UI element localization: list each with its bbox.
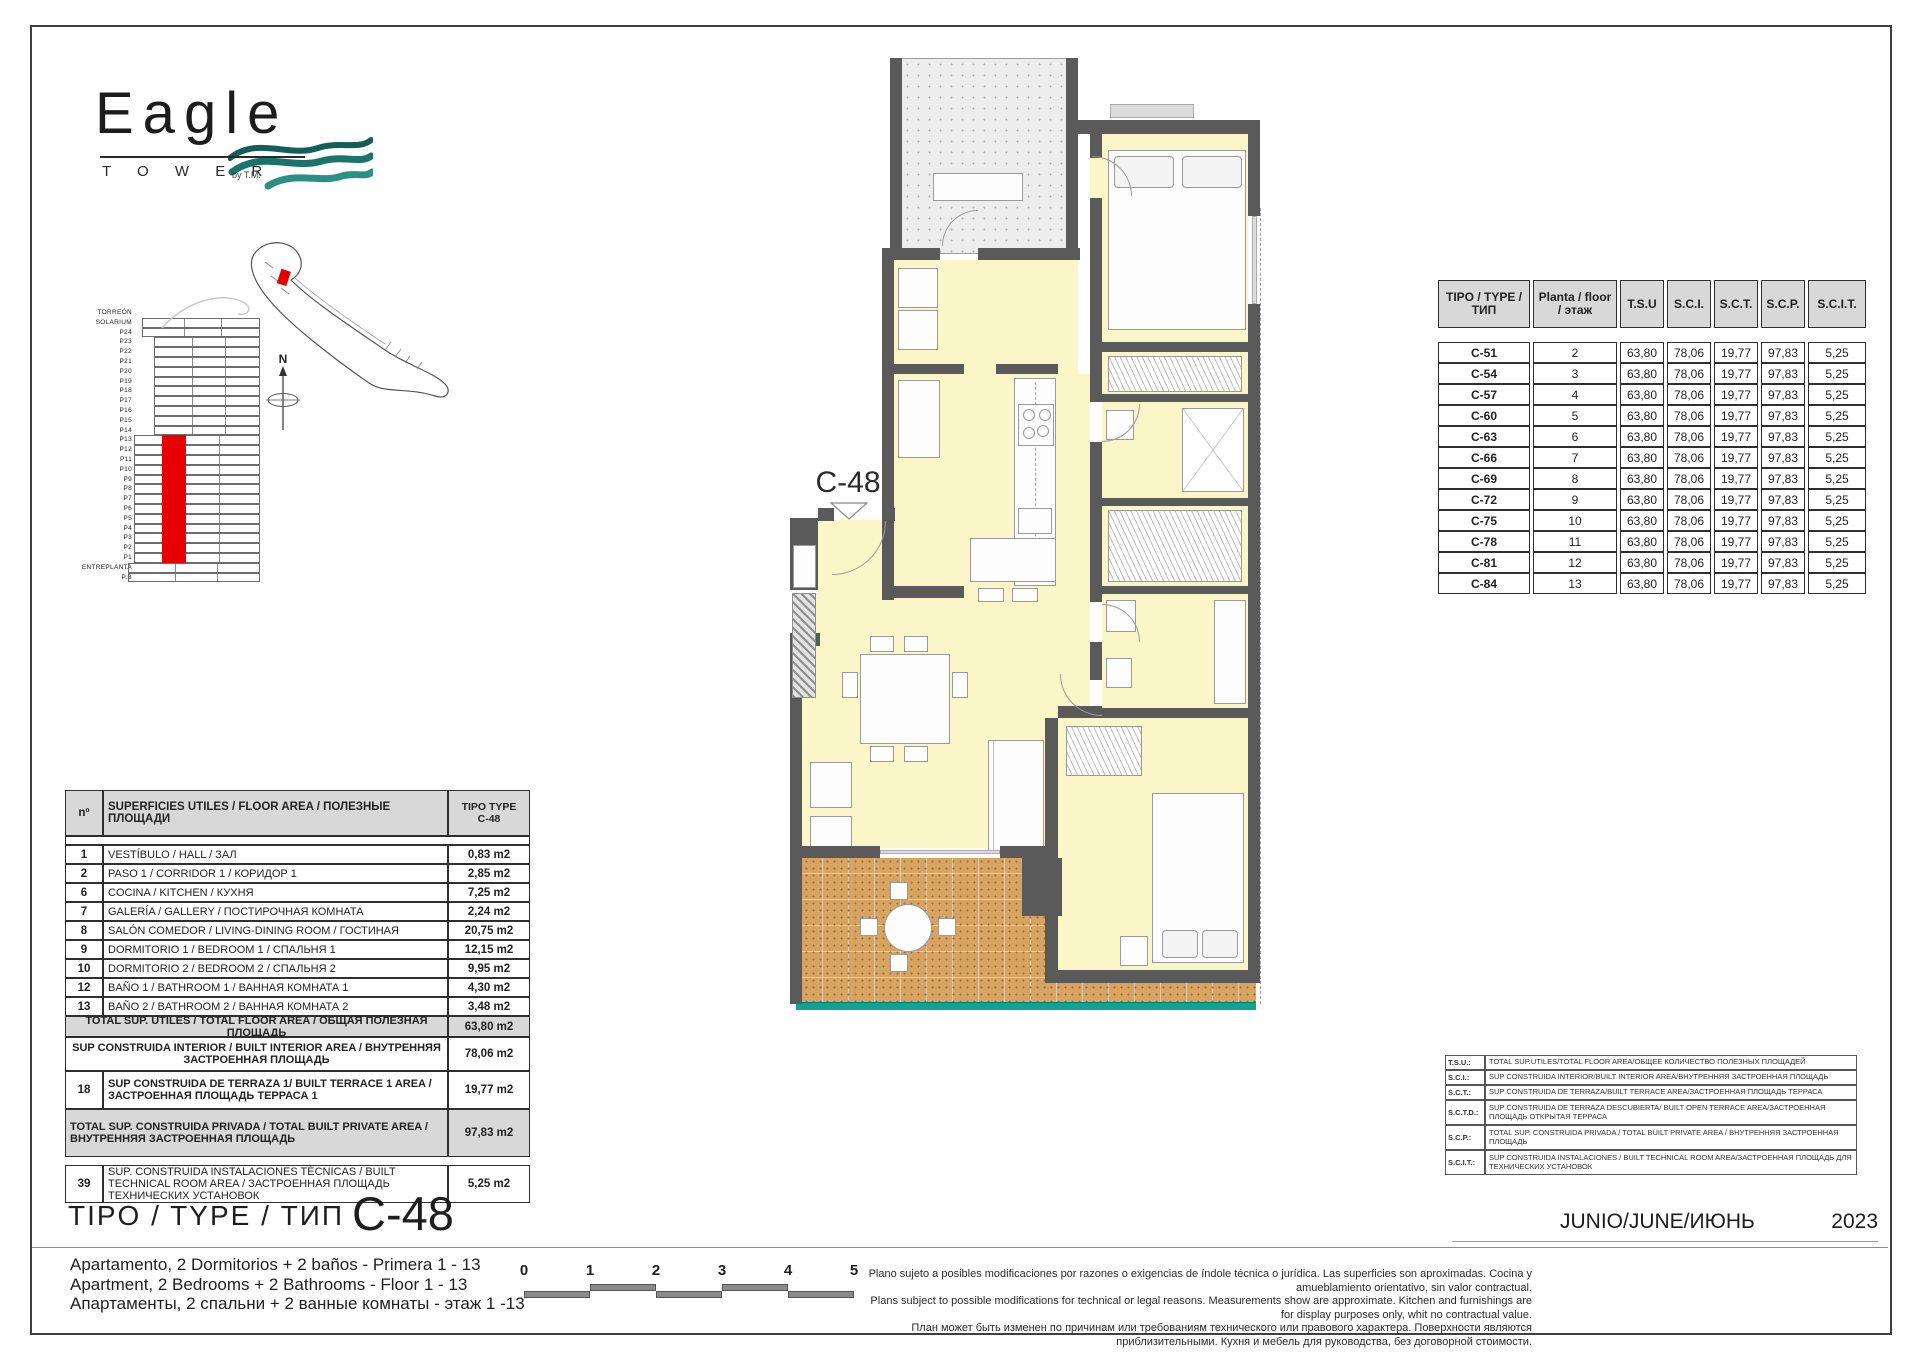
type-table-cell: 78,06	[1667, 489, 1711, 510]
type-table-header-cell: T.S.U	[1620, 280, 1664, 328]
elevation-floor-label: P3	[58, 533, 132, 543]
type-table-cell: 19,77	[1714, 531, 1758, 552]
area-table-row: 7GALERÍA / GALLERY / ПОСТИРОЧНАЯ КОМНАТА…	[65, 902, 530, 921]
type-table-cell: 5,25	[1808, 531, 1866, 552]
legend-row: S.C.I.T.:SUP CONSTRUIDA INSTALACIONES / …	[1445, 1150, 1857, 1175]
type-table-cell: 63,80	[1620, 468, 1664, 489]
area-row-label: GALERÍA / GALLERY / ПОСТИРОЧНАЯ КОМНАТА	[103, 902, 448, 921]
date-year: 2023	[1831, 1210, 1878, 1234]
scale-number: 2	[652, 1262, 660, 1279]
elevation-floor-label: P17	[58, 396, 132, 406]
type-table-cell: 19,77	[1714, 342, 1758, 363]
type-table-cell: C-81	[1438, 552, 1530, 573]
type-table-cell: 5,25	[1808, 426, 1866, 447]
abbreviation-legend-table: T.S.U.:TOTAL SUP.UTILES/TOTAL FLOOR AREA…	[1445, 1055, 1857, 1175]
type-table-cell: 97,83	[1761, 342, 1805, 363]
wall	[1078, 120, 1260, 134]
legend-abbr: S.C.T.:	[1445, 1085, 1485, 1100]
type-table-cell: 19,77	[1714, 447, 1758, 468]
area-row-value: 0,83 m2	[448, 845, 530, 864]
plan-sheet: Eagle T O W E R by T.M. TORREÓNSOLARIUMP…	[0, 0, 1920, 1358]
legend-abbr: S.C.I.T.:	[1445, 1150, 1485, 1175]
scale-number: 3	[718, 1262, 726, 1279]
type-table-cell: C-60	[1438, 405, 1530, 426]
area-table-row: 8SALÓN COMEDOR / LIVING-DINING ROOM / ГО…	[65, 921, 530, 940]
area-table-header: nº SUPERFICIES UTILES / FLOOR AREA / ПОЛ…	[65, 790, 530, 836]
area-row-label: COCINA / KITCHEN / КУХНЯ	[103, 883, 448, 902]
window	[1252, 216, 1257, 304]
type-table-cell: 19,77	[1714, 426, 1758, 447]
elevator	[793, 545, 816, 588]
kitchen-chair	[1012, 588, 1038, 602]
area-row-label: BAÑO 1 / BATHROOM 1 / ВАННАЯ КОМНАТА 1	[103, 978, 448, 997]
wall	[890, 58, 902, 254]
exterior-stair-wall	[792, 593, 816, 698]
legend-desc: SUP CONSTRUIDA DE TERRAZA DESCUBIERTA/ B…	[1485, 1100, 1857, 1125]
type-table-cell: 19,77	[1714, 405, 1758, 426]
type-table-cell: 19,77	[1714, 510, 1758, 531]
elevation-floor-cell	[134, 445, 260, 455]
wardrobe	[1108, 356, 1242, 392]
type-table-cell: 5,25	[1808, 552, 1866, 573]
type-table-cell: 78,06	[1667, 447, 1711, 468]
type-table-cell: 97,83	[1761, 510, 1805, 531]
area-table-col-type-line1: TIPO TYPE	[462, 801, 517, 813]
wall	[1248, 564, 1260, 970]
type-table-header-cell: S.C.T.	[1714, 280, 1758, 328]
type-table-cell: 63,80	[1620, 384, 1664, 405]
area-summary-label: TOTAL SUP. CONSTRUIDA PRIVADA / TOTAL BU…	[65, 1109, 448, 1157]
area-table-row: 2PASO 1 / CORRIDOR 1 / КОРИДОР 12,85 m2	[65, 864, 530, 883]
elevation-floor-label: TORREÓN	[58, 308, 132, 318]
apartment-description-es: Apartamento, 2 Dormitorios + 2 baños - P…	[70, 1255, 525, 1275]
elevation-floor-cell	[128, 563, 260, 573]
area-summary-row: TOTAL SUP. CONSTRUIDA PRIVADA / TOTAL BU…	[65, 1109, 530, 1157]
logo-by-text: by T.M.	[232, 170, 261, 180]
area-table-col-type-line2: C-48	[478, 813, 501, 825]
wall	[894, 586, 964, 598]
terrace-table	[884, 904, 932, 952]
area-summary-value: 78,06 m2	[448, 1037, 530, 1071]
type-table-cell: 63,80	[1620, 405, 1664, 426]
elevation-floor-label: P1	[58, 553, 132, 563]
elevation-floor-label: P20	[58, 367, 132, 377]
area-row-value: 12,15 m2	[448, 940, 530, 959]
area-row-no: 6	[65, 883, 103, 902]
elevation-row: P.B	[58, 573, 298, 583]
wall	[1090, 342, 1248, 352]
area-table-row: 13BAÑO 2 / BATHROOM 2 / ВАННАЯ КОМНАТА 2…	[65, 997, 530, 1016]
unit-pointer-triangle	[830, 502, 868, 520]
elevation-floor-cell	[134, 475, 260, 485]
type-table-cell: 63,80	[1620, 573, 1664, 594]
chair	[904, 746, 928, 762]
area-table-extra: 39SUP. CONSTRUIDA INSTALACIONES TÉCNICAS…	[65, 1165, 530, 1203]
wall	[1090, 134, 1102, 158]
type-table-cell: 7	[1533, 447, 1617, 468]
wall	[1045, 718, 1058, 970]
type-table-cell: 78,06	[1667, 426, 1711, 447]
type-title-label: TIPO / TYPE / ТИП	[68, 1200, 344, 1232]
burner-icon	[1037, 425, 1049, 437]
type-table-cell: 5,25	[1808, 468, 1866, 489]
scale-number: 0	[520, 1262, 528, 1279]
type-table-cell: 2	[1533, 342, 1617, 363]
wall	[894, 364, 964, 374]
area-row-value: 9,95 m2	[448, 959, 530, 978]
type-table-cell: 19,77	[1714, 468, 1758, 489]
wall	[1000, 846, 1058, 858]
wall	[1248, 120, 1260, 216]
type-table-cell: 5,25	[1808, 384, 1866, 405]
type-table-cell: C-84	[1438, 573, 1530, 594]
legal-disclaimer-en: Plans subject to possible modifications …	[860, 1295, 1532, 1322]
elevation-floor-cell	[134, 533, 260, 543]
washer	[898, 268, 938, 308]
bedside-table	[1120, 936, 1148, 966]
type-table-cell: 19,77	[1714, 363, 1758, 384]
toilet-1	[1106, 658, 1132, 688]
area-row-no: 10	[65, 959, 103, 978]
floor-plan: C-48 7 10 6 13 2 1 8 12 9 18	[790, 58, 1270, 1020]
elevation-floor-label: ENTREPLANTA	[58, 563, 132, 573]
area-row-label: SALÓN COMEDOR / LIVING-DINING ROOM / ГОС…	[103, 921, 448, 940]
chair	[904, 636, 928, 652]
type-table-cell: 63,80	[1620, 426, 1664, 447]
elevation-floor-label: SOLARIUM	[58, 318, 132, 328]
fridge	[898, 380, 940, 458]
date-block: JUNIO/JUNE/ИЮНЬ 2023	[1560, 1210, 1878, 1234]
wardrobe	[1108, 510, 1242, 582]
type-table-cell: 13	[1533, 573, 1617, 594]
elevation-floor-label: P15	[58, 416, 132, 426]
type-table-cell: 3	[1533, 363, 1617, 384]
terrace-chair	[890, 882, 908, 900]
type-table-header-cell: S.C.P.	[1761, 280, 1805, 328]
pillow	[1162, 930, 1198, 958]
compass-icon	[262, 366, 306, 434]
elevation-floor-label: P6	[58, 504, 132, 514]
wall	[818, 508, 834, 521]
type-table-cell: 97,83	[1761, 573, 1805, 594]
elevation-floor-label: P22	[58, 347, 132, 357]
legend-desc: SUP CONSTRUIDA INSTALACIONES / BUILT TEC…	[1485, 1150, 1857, 1175]
type-table-cell: 4	[1533, 384, 1617, 405]
legend-row: S.C.I.:SUP CONSTRUIDA INTERIOR/BUILT INT…	[1445, 1070, 1857, 1085]
type-table-cell: 5	[1533, 405, 1617, 426]
logo-underline	[100, 156, 305, 158]
elevation-highlight-bar	[162, 435, 186, 562]
type-table-cell: 5,25	[1808, 405, 1866, 426]
elevation-floor-label: P10	[58, 465, 132, 475]
area-summary-row: 18SUP CONSTRUIDA DE TERRAZA 1/ BUILT TER…	[65, 1071, 530, 1109]
wall	[978, 248, 1080, 260]
window-ledge	[1110, 104, 1194, 118]
wall	[886, 508, 895, 521]
area-row-value: 4,30 m2	[448, 978, 530, 997]
legend-row: S.C.P.:TOTAL SUP. CONSTRUIDA PRIVADA / T…	[1445, 1125, 1857, 1150]
apartment-description-ru: Апартаменты, 2 спальни + 2 ванные комнат…	[70, 1294, 525, 1314]
area-table-row: 9DORMITORIO 1 / BEDROOM 1 / СПАЛЬНЯ 112,…	[65, 940, 530, 959]
type-table-cell: 63,80	[1620, 363, 1664, 384]
legend-desc: TOTAL SUP. CONSTRUIDA PRIVADA / TOTAL BU…	[1485, 1125, 1857, 1150]
legend-desc: SUP CONSTRUIDA INTERIOR/BUILT INTERIOR A…	[1485, 1070, 1857, 1085]
burner-icon	[1023, 427, 1035, 439]
type-table-cell: C-54	[1438, 363, 1530, 384]
type-table-cell: 19,77	[1714, 384, 1758, 405]
type-table-cell: 63,80	[1620, 489, 1664, 510]
type-table-cell: 9	[1533, 489, 1617, 510]
wall	[1090, 350, 1102, 402]
terrace-chair	[860, 918, 878, 936]
elevation-floor-label: P5	[58, 514, 132, 524]
type-table-cell: 78,06	[1667, 573, 1711, 594]
type-table-cell: 19,77	[1714, 489, 1758, 510]
scale-segment	[656, 1291, 722, 1298]
area-row-label: DORMITORIO 1 / BEDROOM 1 / СПАЛЬНЯ 1	[103, 940, 448, 959]
area-row-label: VESTÍBULO / HALL / ЗАЛ	[103, 845, 448, 864]
area-table: nº SUPERFICIES UTILES / FLOOR AREA / ПОЛ…	[65, 790, 530, 1203]
wall	[882, 248, 940, 260]
logo-waves-icon	[228, 128, 373, 194]
footer-separator	[32, 1247, 1888, 1248]
type-table-cell: 19,77	[1714, 552, 1758, 573]
type-table-cell: C-75	[1438, 510, 1530, 531]
type-table-cell: C-51	[1438, 342, 1530, 363]
legal-disclaimer: Plano sujeto a posibles modificaciones p…	[860, 1268, 1532, 1349]
area-table-row: 12BAÑO 1 / BATHROOM 1 / ВАННАЯ КОМНАТА 1…	[65, 978, 530, 997]
wall	[996, 364, 1058, 374]
dryer	[898, 310, 938, 350]
legal-disclaimer-es: Plano sujeto a posibles modificaciones p…	[860, 1268, 1532, 1295]
elevation-floor-cell	[134, 465, 260, 475]
area-row-value: 2,85 m2	[448, 864, 530, 883]
burner-icon	[1039, 409, 1051, 421]
area-table-row: 6COCINA / KITCHEN / КУХНЯ7,25 m2	[65, 883, 530, 902]
type-table-cell: 97,83	[1761, 384, 1805, 405]
type-table-cell: 63,80	[1620, 531, 1664, 552]
wall	[1102, 586, 1248, 594]
type-table-cell: 78,06	[1667, 405, 1711, 426]
area-extra-value: 5,25 m2	[448, 1165, 530, 1203]
area-summary-value: 63,80 m2	[448, 1016, 530, 1037]
wall	[1066, 58, 1078, 254]
kitchen-chair	[978, 588, 1004, 602]
scale-number: 5	[850, 1262, 858, 1279]
date-months: JUNIO/JUNE/ИЮНЬ	[1560, 1210, 1755, 1234]
dining-table	[860, 654, 950, 744]
kitchen-sink	[1018, 508, 1052, 534]
area-row-no: 12	[65, 978, 103, 997]
area-row-label: PASO 1 / CORRIDOR 1 / КОРИДОР 1	[103, 864, 448, 883]
area-row-no: 9	[65, 940, 103, 959]
wall	[1102, 394, 1248, 402]
elevation-floor-label: P9	[58, 475, 132, 485]
area-table-row: 1VESTÍBULO / HALL / ЗАЛ0,83 m2	[65, 845, 530, 864]
legend-abbr: T.S.U.:	[1445, 1055, 1485, 1070]
area-summary-row: TOTAL SUP. UTILES / TOTAL FLOOR AREA / О…	[65, 1016, 530, 1037]
bathtub-1	[1214, 600, 1246, 704]
wall	[1248, 304, 1260, 564]
type-table-cell: 5,25	[1808, 573, 1866, 594]
area-extra-row: 39SUP. CONSTRUIDA INSTALACIONES TÉCNICAS…	[65, 1165, 530, 1203]
type-table-cell: 97,83	[1761, 447, 1805, 468]
type-table-cell: 97,83	[1761, 363, 1805, 384]
elevation-floor-cell	[134, 504, 260, 514]
area-table-summary: TOTAL SUP. UTILES / TOTAL FLOOR AREA / О…	[65, 1016, 530, 1157]
type-table-cell: 97,83	[1761, 468, 1805, 489]
type-title-code: C-48	[352, 1186, 454, 1241]
shower-2	[1182, 408, 1244, 492]
type-table-cell: 78,06	[1667, 384, 1711, 405]
scale-segment	[590, 1284, 656, 1291]
type-table-cell: 78,06	[1667, 468, 1711, 489]
elevation-floor-label: P14	[58, 426, 132, 436]
elevation-floor-label: P2	[58, 543, 132, 553]
legend-abbr: S.C.T.D.:	[1445, 1100, 1485, 1125]
type-table-cell: 63,80	[1620, 342, 1664, 363]
area-table-row: 10DORMITORIO 2 / BEDROOM 2 / СПАЛЬНЯ 29,…	[65, 959, 530, 978]
elevation-floor-cell	[134, 455, 260, 465]
terrace-pillar	[1022, 858, 1062, 916]
terrace-chair	[890, 954, 908, 972]
scale-segment	[524, 1291, 590, 1298]
type-table-header-cell: S.C.I.T.	[1808, 280, 1866, 328]
legend-abbr: S.C.P.:	[1445, 1125, 1485, 1150]
type-table-cell: 6	[1533, 426, 1617, 447]
type-table-cell: 97,83	[1761, 489, 1805, 510]
type-table-cell: C-72	[1438, 489, 1530, 510]
type-table-cell: 11	[1533, 531, 1617, 552]
burner-icon	[1023, 409, 1035, 421]
area-row-no: 2	[65, 864, 103, 883]
apartment-description: Apartamento, 2 Dormitorios + 2 baños - P…	[70, 1255, 525, 1314]
type-table-header-cell: Planta / floor / этаж	[1533, 280, 1617, 328]
type-table-cell: 63,80	[1620, 552, 1664, 573]
area-table-spacer-row	[65, 836, 530, 845]
legend-row: S.C.T.D.:SUP CONSTRUIDA DE TERRAZA DESCU…	[1445, 1100, 1857, 1125]
type-table-cell: 78,06	[1667, 552, 1711, 573]
pillow	[1202, 930, 1238, 958]
area-row-value: 7,25 m2	[448, 883, 530, 902]
type-table-cell: C-57	[1438, 384, 1530, 405]
scale-number: 4	[784, 1262, 792, 1279]
date-underline	[1452, 1241, 1878, 1242]
sofa	[988, 740, 1044, 852]
elevation-floor-label: P8	[58, 484, 132, 494]
wall	[790, 846, 880, 858]
type-table-cell: 63,80	[1620, 510, 1664, 531]
wall	[1102, 498, 1248, 506]
legend-row: S.C.T.:SUP CONSTRUIDA DE TERRAZA/BUILT T…	[1445, 1085, 1857, 1100]
scale-number: 1	[586, 1262, 594, 1279]
area-row-no: 7	[65, 902, 103, 921]
type-table-cell: C-69	[1438, 468, 1530, 489]
legend-desc: TOTAL SUP.UTILES/TOTAL FLOOR AREA/ОБЩЕЕ …	[1485, 1055, 1857, 1070]
type-table-cell: 5,25	[1808, 489, 1866, 510]
type-table-cell: 12	[1533, 552, 1617, 573]
elevation-floor-label: P19	[58, 377, 132, 387]
area-row-no: 8	[65, 921, 103, 940]
area-table-body: 1VESTÍBULO / HALL / ЗАЛ0,83 m22PASO 1 / …	[65, 845, 530, 1016]
type-table-cell: 78,06	[1667, 531, 1711, 552]
type-table-cell: 78,06	[1667, 510, 1711, 531]
type-table-cell: C-66	[1438, 447, 1530, 468]
type-table-cell: 97,83	[1761, 552, 1805, 573]
type-table-cell: 5,25	[1808, 363, 1866, 384]
elevation-floor-label: P11	[58, 455, 132, 465]
terrace-glass-door	[880, 850, 1000, 854]
kitchen-peninsula	[970, 538, 1056, 582]
scale-segment	[788, 1291, 854, 1298]
wall	[882, 260, 894, 600]
area-row-label: DORMITORIO 2 / BEDROOM 2 / СПАЛЬНЯ 2	[103, 959, 448, 978]
elevation-row: ENTREPLANTA	[58, 563, 298, 573]
area-table-col-no: nº	[65, 790, 103, 836]
area-summary-value: 19,77 m2	[448, 1071, 530, 1109]
elevation-floor-cell	[128, 573, 260, 583]
area-summary-label: SUP CONSTRUIDA DE TERRAZA 1/ BUILT TERRA…	[103, 1071, 448, 1109]
type-table-cell: 8	[1533, 468, 1617, 489]
area-row-value: 3,48 m2	[448, 997, 530, 1016]
elevation-floor-label: P23	[58, 337, 132, 347]
scale-bar: 012345	[524, 1262, 864, 1304]
area-table-col-label: SUPERFICIES UTILES / FLOOR AREA / ПОЛЕЗН…	[103, 790, 448, 836]
elevation-floor-label: P.B	[58, 573, 132, 583]
type-table-cell: 78,06	[1667, 363, 1711, 384]
area-row-no: 13	[65, 997, 103, 1016]
elevation-floor-label: P7	[58, 494, 132, 504]
legend-desc: SUP CONSTRUIDA DE TERRAZA/BUILT TERRACE …	[1485, 1085, 1857, 1100]
area-row-label: BAÑO 2 / BATHROOM 2 / ВАННАЯ КОМНАТА 2	[103, 997, 448, 1016]
elevation-floor-cell	[134, 543, 260, 553]
elevation-floor-label: P18	[58, 386, 132, 396]
type-table-header-cell: TIPO / TYPE / ТИП	[1438, 280, 1530, 328]
legend-abbr: S.C.I.:	[1445, 1070, 1485, 1085]
property-boundary-dashed	[1260, 208, 1261, 1004]
type-table-body: C-51263,8078,0619,7797,835,25C-54363,807…	[1438, 342, 1866, 594]
area-summary-row: SUP CONSTRUIDA INTERIOR / BUILT INTERIOR…	[65, 1037, 530, 1071]
type-table-cell: 5,25	[1808, 447, 1866, 468]
wall	[1102, 708, 1248, 718]
type-table-cell: 78,06	[1667, 342, 1711, 363]
type-table-header: TIPO / TYPE / ТИП Planta / floor / этаж …	[1438, 280, 1866, 328]
type-table-cell: 10	[1533, 510, 1617, 531]
elevation-floor-label: P16	[58, 406, 132, 416]
wall	[1090, 442, 1102, 602]
area-summary-value: 97,83 m2	[448, 1109, 530, 1157]
elevation-floor-cell	[134, 494, 260, 504]
type-table-cell: 97,83	[1761, 426, 1805, 447]
lounge-chair	[810, 762, 852, 808]
elevation-floor-label: P4	[58, 524, 132, 534]
wall	[790, 858, 802, 1004]
type-table-cell: 97,83	[1761, 405, 1805, 426]
terrace-edge-accent	[796, 1002, 1256, 1010]
open-terrace-top	[890, 58, 1078, 254]
scale-segment	[722, 1284, 788, 1291]
area-extra-no: 39	[65, 1165, 103, 1203]
area-row-value: 2,24 m2	[448, 902, 530, 921]
elevation-floor-label: P13	[58, 435, 132, 445]
area-summary-label: SUP CONSTRUIDA INTERIOR / BUILT INTERIOR…	[65, 1037, 448, 1071]
wall	[1090, 198, 1102, 350]
elevation-floor-cell	[134, 553, 260, 563]
type-table-cell: C-78	[1438, 531, 1530, 552]
elevation-floor-label: P24	[58, 328, 132, 338]
area-row-no: 1	[65, 845, 103, 864]
chair	[870, 746, 894, 762]
